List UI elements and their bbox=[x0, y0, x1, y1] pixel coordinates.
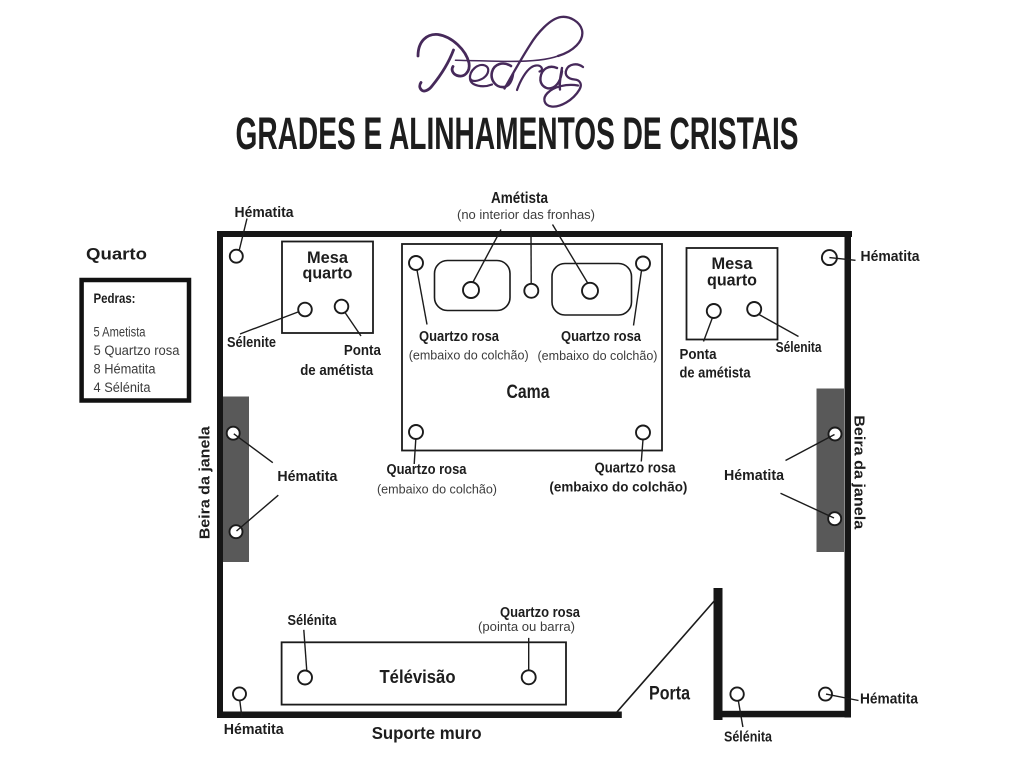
svg-text:quarto: quarto bbox=[303, 265, 353, 283]
svg-text:Cama: Cama bbox=[507, 382, 550, 403]
svg-text:Télévisão: Télévisão bbox=[380, 667, 456, 687]
svg-text:(embaixo do colchão): (embaixo do colchão) bbox=[409, 348, 529, 363]
svg-text:Hématita: Hématita bbox=[277, 469, 338, 485]
svg-text:(embaixo do colchão): (embaixo do colchão) bbox=[538, 348, 658, 363]
svg-text:Sélénita: Sélénita bbox=[724, 730, 773, 746]
svg-text:GRADES E ALINHAMENTOS DE CRIST: GRADES E ALINHAMENTOS DE CRISTAIS bbox=[236, 108, 799, 159]
svg-text:de amétista: de amétista bbox=[680, 366, 752, 382]
svg-text:Porta: Porta bbox=[649, 684, 690, 705]
svg-text:8 Hématita: 8 Hématita bbox=[94, 362, 156, 377]
svg-text:Quartzo rosa: Quartzo rosa bbox=[387, 462, 468, 478]
svg-text:Suporte muro: Suporte muro bbox=[372, 723, 482, 743]
svg-text:Beira da janela: Beira da janela bbox=[196, 426, 213, 540]
svg-text:Quartzo rosa: Quartzo rosa bbox=[419, 329, 500, 345]
svg-text:Beira da janela: Beira da janela bbox=[851, 415, 868, 530]
svg-text:(pointa ou barra): (pointa ou barra) bbox=[478, 619, 575, 634]
svg-text:Hématita: Hématita bbox=[235, 205, 295, 221]
svg-text:Ponta: Ponta bbox=[344, 343, 382, 359]
svg-text:Ponta: Ponta bbox=[680, 347, 718, 363]
svg-text:Quartzo rosa: Quartzo rosa bbox=[595, 461, 677, 477]
svg-text:Hématita: Hématita bbox=[224, 722, 285, 738]
svg-text:Quarto: Quarto bbox=[86, 245, 147, 264]
svg-text:Pedras:: Pedras: bbox=[94, 290, 136, 306]
svg-text:Quartzo rosa: Quartzo rosa bbox=[561, 329, 642, 345]
svg-text:quarto: quarto bbox=[707, 272, 757, 290]
svg-text:4 Sélénita: 4 Sélénita bbox=[94, 380, 151, 395]
svg-text:Mesa: Mesa bbox=[712, 255, 754, 273]
svg-text:de amétista: de amétista bbox=[300, 363, 374, 379]
svg-text:Sélénita: Sélénita bbox=[288, 613, 338, 629]
svg-text:Sélenita: Sélenita bbox=[776, 340, 823, 356]
svg-text:(embaixo do colchão): (embaixo do colchão) bbox=[377, 482, 497, 497]
svg-text:Hématita: Hématita bbox=[861, 249, 921, 265]
svg-text:5 Quartzo rosa: 5 Quartzo rosa bbox=[94, 343, 180, 358]
svg-text:(no interior das fronhas): (no interior das fronhas) bbox=[457, 207, 595, 222]
svg-text:(embaixo do colchão): (embaixo do colchão) bbox=[549, 479, 687, 495]
svg-text:Amétista: Amétista bbox=[491, 190, 548, 207]
svg-text:Sélenite: Sélenite bbox=[227, 335, 276, 351]
svg-text:Hématita: Hématita bbox=[860, 692, 919, 708]
svg-text:5 Ametista: 5 Ametista bbox=[94, 325, 146, 340]
svg-text:Hématita: Hématita bbox=[724, 468, 785, 484]
